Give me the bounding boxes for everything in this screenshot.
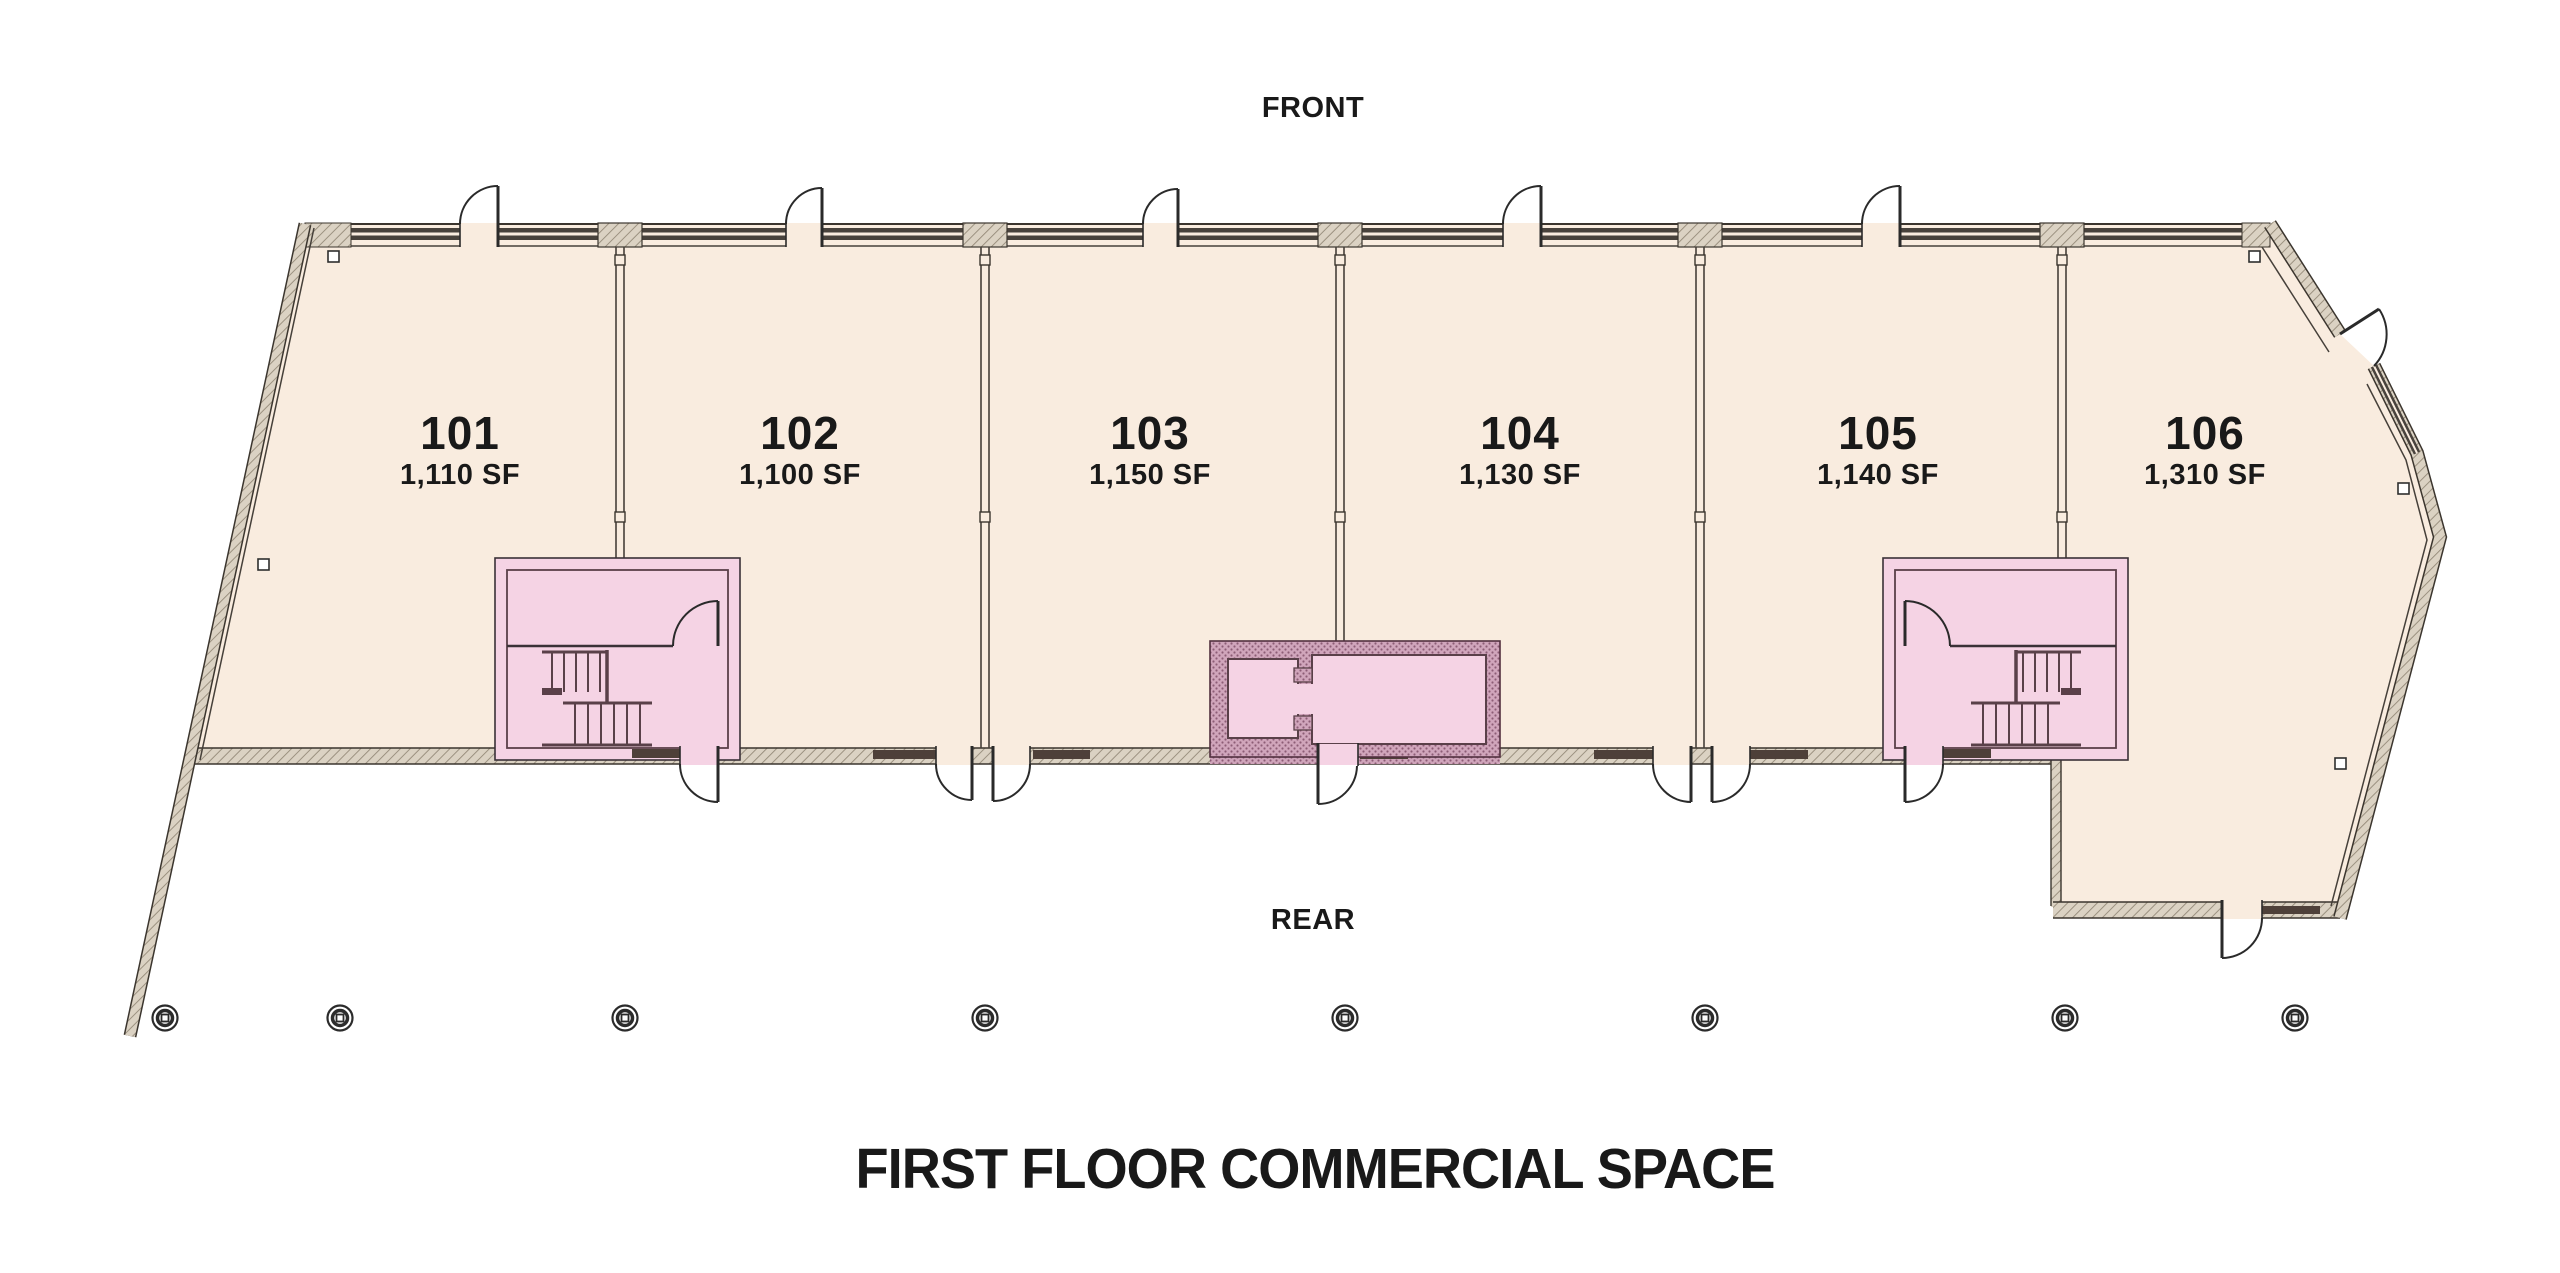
rear-door-106 [2222,900,2262,958]
front-door-104 [1503,186,1541,247]
elevator-shaft [1210,641,1500,757]
unit-105-number: 105 [1817,408,1939,458]
rear-door-stair-right [1905,746,1943,802]
column-marker [2283,1006,2308,1031]
front-door-101 [460,186,498,247]
column-marker [613,1006,638,1031]
rear-door-stair-left [680,746,718,802]
unit-101-area: 1,110 SF [400,458,520,492]
unit-105-label: 105 1,140 SF [1817,408,1939,492]
column-marker [973,1006,998,1031]
unit-102-label: 102 1,100 SF [739,408,861,492]
rear-door-104 [1653,746,1691,802]
rear-doors [680,743,2262,958]
rear-wall [188,748,2057,764]
unit-103-label: 103 1,150 SF [1089,408,1211,492]
unit-103-area: 1,150 SF [1089,458,1211,492]
unit-104-area: 1,130 SF [1459,458,1581,492]
rear-door-105 [1712,746,1750,802]
unit-104-label: 104 1,130 SF [1459,408,1581,492]
unit-105-area: 1,140 SF [1817,458,1939,492]
front-door-105 [1862,186,1900,247]
rear-door-102 [936,746,972,800]
rear-label: REAR [1271,904,1355,937]
unit-101-label: 101 1,110 SF [400,408,520,492]
front-door-103 [1143,189,1178,247]
column-marker [1693,1006,1718,1031]
unit-103-number: 103 [1089,408,1211,458]
unit-102-area: 1,100 SF [739,458,861,492]
stairwell-left [495,558,740,760]
rear-door-103 [993,746,1030,801]
floor-plan-page: FRONT REAR 101 1,110 SF 102 1,100 SF 103… [0,0,2560,1273]
unit-106-number: 106 [2144,408,2266,458]
column-marker [328,1006,353,1031]
column-marker [153,1006,178,1031]
rear-door-elevator [1318,743,1358,804]
unit-102-number: 102 [739,408,861,458]
column-markers [153,1006,2308,1031]
floorplan-drawing [0,0,2560,1273]
unit-106-area: 1,310 SF [2144,458,2266,492]
front-label: FRONT [1262,92,1364,125]
stairwell-right [1883,558,2128,760]
plan-title: FIRST FLOOR COMMERCIAL SPACE [855,1136,1774,1202]
column-marker [2053,1006,2078,1031]
unit-104-number: 104 [1459,408,1581,458]
unit-106-label: 106 1,310 SF [2144,408,2266,492]
unit-101-number: 101 [400,408,520,458]
column-marker [1333,1006,1358,1031]
front-door-102 [786,188,822,247]
